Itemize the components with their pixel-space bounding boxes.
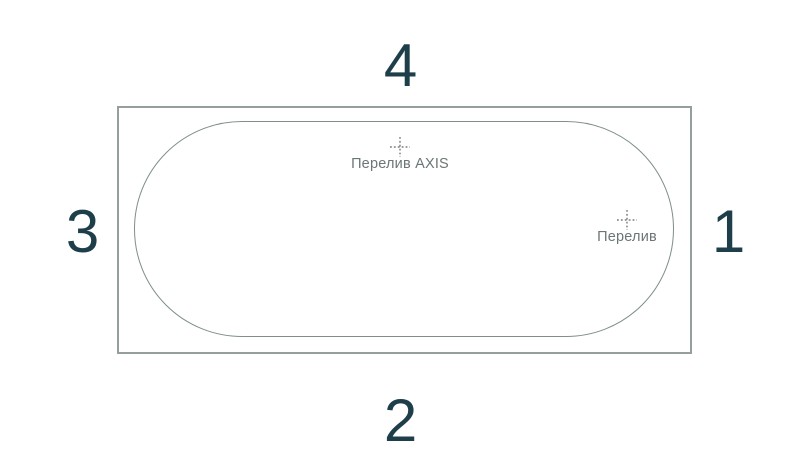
bathtub-top-view-diagram: 4 2 3 1 Перелив AXIS Перелив — [0, 0, 800, 464]
side-label-left: 3 — [66, 202, 98, 262]
side-label-bottom: 2 — [384, 391, 416, 451]
side-label-top: 4 — [384, 36, 416, 96]
side-label-right: 1 — [712, 202, 744, 262]
overflow-label: Перелив — [597, 229, 657, 245]
overflow-axis-label: Перелив AXIS — [351, 156, 449, 172]
